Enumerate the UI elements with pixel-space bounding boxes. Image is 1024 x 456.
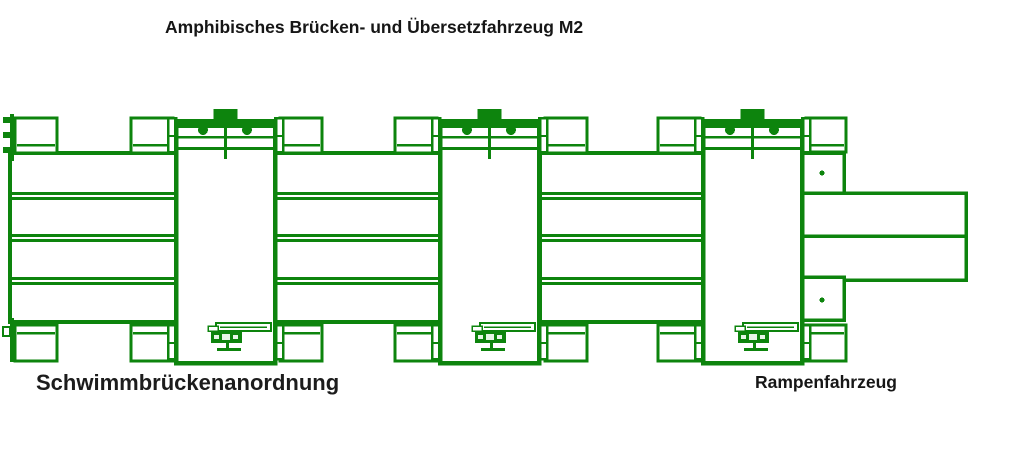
ferry-vehicle xyxy=(695,109,810,363)
pontoon-box xyxy=(280,118,322,153)
edge-connector-bracket xyxy=(3,327,10,336)
roof-hatch xyxy=(725,125,735,135)
edge-connector-tab xyxy=(3,117,11,123)
deck-lane-divider xyxy=(12,239,174,242)
pontoon-box xyxy=(658,118,700,153)
caption-bridge-arrangement: Schwimmbrückenanordnung xyxy=(36,370,339,396)
center-divider xyxy=(751,121,754,151)
winch-window xyxy=(233,335,238,339)
winch-window xyxy=(478,335,483,339)
center-divider-stub xyxy=(751,151,754,159)
pontoon-inner-line xyxy=(547,144,585,147)
winch-window xyxy=(222,334,230,340)
roof-hatch xyxy=(242,125,252,135)
deck-lane-divider xyxy=(12,277,174,280)
hull-fitting-dot xyxy=(820,298,825,303)
edge-connector-bar xyxy=(10,318,14,362)
deck-roadway xyxy=(540,153,703,322)
boom-hook xyxy=(472,326,482,331)
boom-inner-line xyxy=(484,327,531,329)
pontoon-box xyxy=(15,325,57,361)
driver-cab xyxy=(478,109,502,123)
caption-ramp-vehicle: Rampenfahrzeug xyxy=(755,372,897,393)
center-divider-stub xyxy=(224,151,227,159)
stand-base xyxy=(744,348,768,351)
roof-hatch xyxy=(198,125,208,135)
pontoon-box xyxy=(131,118,173,153)
bridge-deck-section xyxy=(275,118,440,361)
roof-hatch xyxy=(462,125,472,135)
pontoon-box xyxy=(545,325,587,361)
boom-hook xyxy=(735,326,745,331)
pontoon-inner-line xyxy=(547,332,585,335)
deck-lane-divider xyxy=(542,234,701,237)
pontoon-box xyxy=(280,325,322,361)
roof-hatch xyxy=(506,125,516,135)
center-divider xyxy=(224,121,227,151)
pontoon-box xyxy=(395,325,437,361)
deck-roadway xyxy=(10,153,176,322)
pontoon-inner-line xyxy=(808,144,844,147)
boom-hook xyxy=(208,326,218,331)
deck-lane-divider xyxy=(12,197,174,200)
pontoon-inner-line xyxy=(660,332,698,335)
pontoon-inner-line xyxy=(660,144,698,147)
page-background: Amphibisches Brücken- und Übersetzfahrze… xyxy=(0,0,1024,456)
stand-base xyxy=(217,348,241,351)
winch-window xyxy=(214,335,219,339)
deck-lane-divider xyxy=(542,277,701,280)
center-divider xyxy=(488,121,491,151)
edge-connector-tab xyxy=(11,327,16,334)
pontoon-inner-line xyxy=(282,332,320,335)
pontoon-box xyxy=(658,325,700,361)
winch-window xyxy=(760,335,765,339)
winch-window xyxy=(497,335,502,339)
ramp-vehicle xyxy=(798,118,966,361)
stand-base xyxy=(481,348,505,351)
bridge-deck-section xyxy=(3,114,176,362)
winch-window xyxy=(741,335,746,339)
pontoon-inner-line xyxy=(282,144,320,147)
pontoon-box xyxy=(15,118,57,153)
deck-lane-divider xyxy=(542,239,701,242)
pontoon-inner-line xyxy=(17,144,55,147)
ferry-vehicle xyxy=(432,109,547,363)
boom-inner-line xyxy=(220,327,267,329)
deck-lane-divider xyxy=(12,234,174,237)
ramp-upper xyxy=(798,193,966,239)
deck-lane-divider xyxy=(277,277,438,280)
pontoon-inner-line xyxy=(397,332,435,335)
pontoon-inner-line xyxy=(397,144,435,147)
edge-connector-tab xyxy=(3,132,11,138)
stand-stem xyxy=(226,343,229,348)
winch-window xyxy=(749,334,757,340)
winch-window xyxy=(486,334,494,340)
pontoon-inner-line xyxy=(133,144,171,147)
stand-stem xyxy=(753,343,756,348)
hull-fitting-dot xyxy=(820,171,825,176)
driver-cab xyxy=(741,109,765,123)
stand-stem xyxy=(490,343,493,348)
pontoon-box xyxy=(131,325,173,361)
pontoon-inner-line xyxy=(808,332,844,335)
deck-lane-divider xyxy=(277,197,438,200)
pontoon-inner-line xyxy=(17,332,55,335)
bridge-deck-section xyxy=(540,118,703,361)
ramp-lower xyxy=(798,236,966,280)
pontoon-inner-line xyxy=(133,332,171,335)
deck-lane-divider xyxy=(277,192,438,195)
deck-lane-divider xyxy=(542,192,701,195)
ferry-vehicle xyxy=(168,109,283,363)
deck-lane-divider xyxy=(12,282,174,285)
deck-lane-divider xyxy=(277,239,438,242)
center-divider-stub xyxy=(488,151,491,159)
deck-roadway xyxy=(275,153,440,322)
deck-lane-divider xyxy=(277,282,438,285)
deck-lane-divider xyxy=(277,234,438,237)
driver-cab xyxy=(214,109,238,123)
deck-lane-divider xyxy=(542,282,701,285)
deck-lane-divider xyxy=(542,197,701,200)
pontoon-box xyxy=(806,325,846,361)
boom-inner-line xyxy=(747,327,794,329)
edge-connector-tab xyxy=(3,147,11,153)
pontoon-box xyxy=(395,118,437,153)
pontoon-box xyxy=(806,118,846,152)
roof-hatch xyxy=(769,125,779,135)
deck-lane-divider xyxy=(12,192,174,195)
pontoon-box xyxy=(545,118,587,153)
